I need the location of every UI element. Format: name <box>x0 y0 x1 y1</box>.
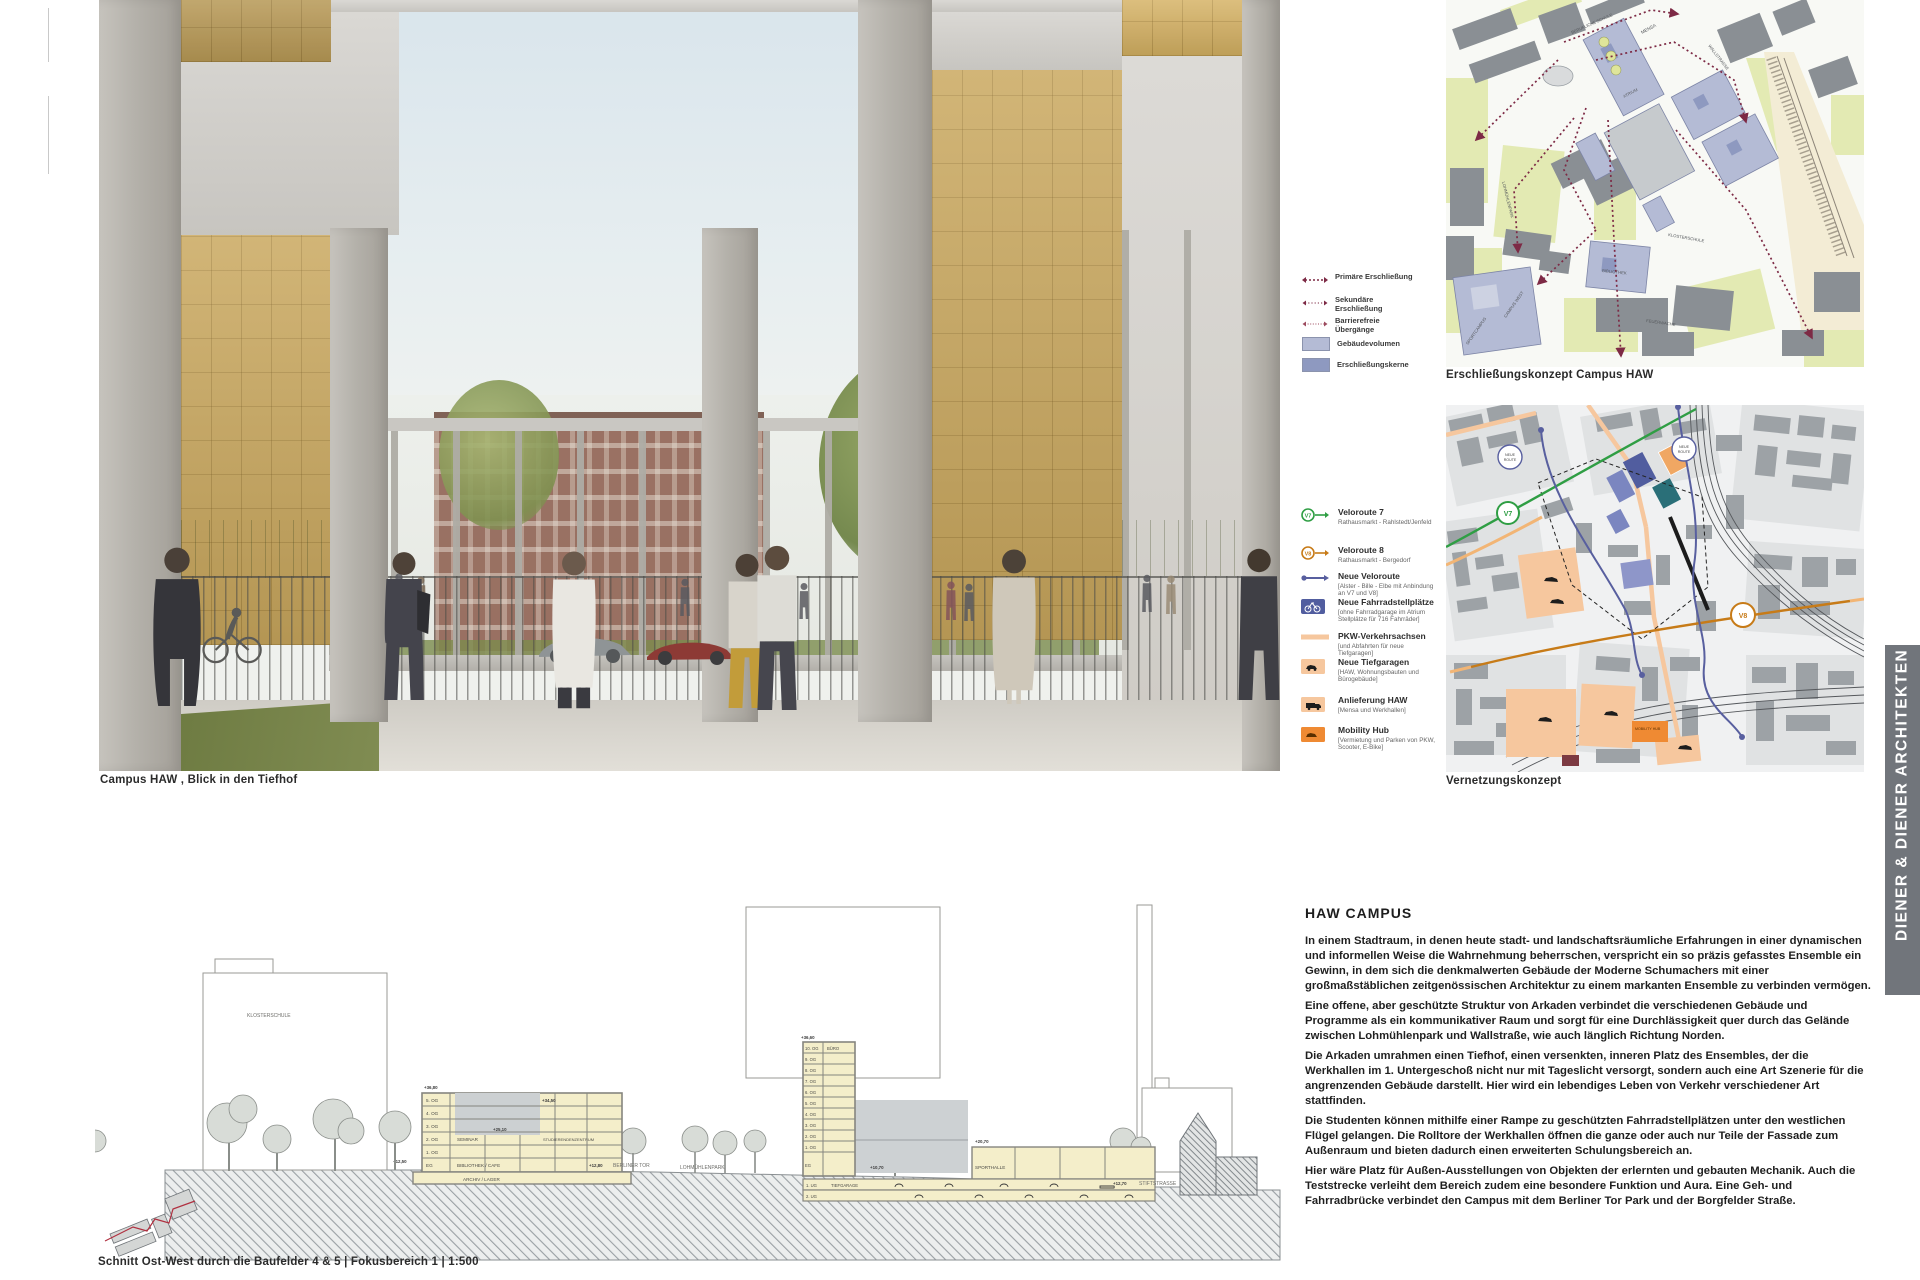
svg-text:V7: V7 <box>1305 514 1312 520</box>
mobility-hub-area <box>1632 721 1668 742</box>
gabled-annex <box>1216 1157 1257 1195</box>
crop-mark <box>48 96 49 174</box>
presentation-board: Campus HAW , Blick in den Tiefhof <box>0 0 1920 1280</box>
legend1-item: Primäre Erschließung <box>1302 272 1448 282</box>
svg-text:+25,10: +25,10 <box>493 1127 507 1132</box>
svg-text:3. OG: 3. OG <box>426 1124 439 1129</box>
garage-level2 <box>803 1190 1155 1201</box>
svg-text:SEMINAR: SEMINAR <box>457 1137 479 1142</box>
svg-text:3. OG: 3. OG <box>805 1123 816 1128</box>
sporthalle <box>972 1147 1155 1179</box>
veloroute8-icon: V8 <box>1300 546 1330 560</box>
svg-text:8. OG: 8. OG <box>805 1068 816 1073</box>
svg-text:NEUE: NEUE <box>1505 453 1516 457</box>
svg-text:EG: EG <box>805 1163 811 1168</box>
crop-mark <box>48 8 49 62</box>
article-title: HAW CAMPUS <box>1305 905 1871 921</box>
svg-text:EG: EG <box>426 1163 433 1168</box>
svg-text:5. OG: 5. OG <box>805 1101 816 1106</box>
svg-text:BIBLIOTHEK / CAFE: BIBLIOTHEK / CAFE <box>457 1163 500 1168</box>
svg-text:V8: V8 <box>1305 552 1312 558</box>
svg-text:NEUE: NEUE <box>1679 445 1690 449</box>
svg-text:+36,80: +36,80 <box>424 1085 438 1090</box>
map2-caption: Vernetzungskonzept <box>1446 775 1561 787</box>
stiftstrasse-label: STIFTSTRASSE <box>1139 1181 1177 1187</box>
svg-text:+20,70: +20,70 <box>975 1139 989 1144</box>
courtyard-rendering <box>99 0 1280 771</box>
svg-text:2. OG: 2. OG <box>805 1134 816 1139</box>
circulation-core-swatch <box>1302 358 1330 372</box>
bike-parking-icon <box>1300 598 1330 616</box>
svg-text:V7: V7 <box>1504 511 1513 518</box>
svg-text:6. OG: 6. OG <box>805 1090 816 1095</box>
svg-text:5. OG: 5. OG <box>426 1098 439 1103</box>
map-erschliessungskonzept: BERUFLICHE SCHULE MENSA WALLSTRASSE ATRI… <box>1446 0 1864 367</box>
person-lab-coat <box>552 551 595 706</box>
svg-text:1. OG: 1. OG <box>426 1150 439 1155</box>
race-car <box>647 643 735 665</box>
legend2-item: Neue Tiefgaragen[HAW, Wohnungsbauten und… <box>1300 658 1450 683</box>
map-vernetzungskonzept: MOBILITY HUB <box>1446 405 1864 772</box>
legend2-item: Neue Veloroute[Alster - Bille - Elbe mit… <box>1300 572 1450 597</box>
svg-text:V8: V8 <box>1739 613 1748 620</box>
svg-text:ROUTE: ROUTE <box>1678 450 1691 454</box>
building-a: 5. OG 4. OG 3. OG 2. OG 1. OG EG SEMINAR… <box>413 1085 631 1184</box>
section-drawing: KLOSTERSCHULE +12,50 <box>95 895 1285 1270</box>
mobility-hub-icon <box>1300 726 1330 744</box>
svg-text:+12,80: +12,80 <box>589 1163 603 1168</box>
svg-text:+34,50: +34,50 <box>542 1098 556 1103</box>
architect-name: DIENER & DIENER ARCHITEKTEN <box>1885 645 1920 945</box>
svg-text:BÜRO: BÜRO <box>827 1046 840 1051</box>
person-cyclist <box>204 608 261 662</box>
street-elev: +12,70 <box>1113 1181 1127 1186</box>
section-caption: Schnitt Ost-West durch die Baufelder 4 &… <box>98 1256 479 1268</box>
building-volume-swatch <box>1302 337 1330 351</box>
delivery-icon <box>1300 696 1330 714</box>
building-b: 10. OG 9. OG 8. OG 7. OG 6. OG 5. OG 4. … <box>801 1035 1155 1201</box>
svg-text:ARCHIV / LAGER: ARCHIV / LAGER <box>463 1177 500 1182</box>
person-man-shirt <box>757 546 796 710</box>
barrier-free-icon <box>1302 316 1328 326</box>
legend2-item: V7 Veloroute 7Rathausmarkt - Rahlstedt/J… <box>1300 508 1450 526</box>
primary-route-icon <box>1302 272 1328 282</box>
legend1-item: Erschließungskerne <box>1302 358 1448 372</box>
map1-caption: Erschließungskonzept Campus HAW <box>1446 369 1653 381</box>
lohmuehlenpark-label: LOHMÜHLENPARK <box>680 1164 725 1171</box>
legend2-item: Mobility Hub[Vermietung und Parken von P… <box>1300 726 1450 751</box>
neue-veloroute-icon <box>1300 572 1330 584</box>
legend1-item: Barrierefreie Übergänge <box>1302 316 1448 334</box>
svg-text:4. OG: 4. OG <box>426 1111 439 1116</box>
svg-text:ROUTE: ROUTE <box>1504 458 1517 462</box>
svg-text:TIEFGARAGE: TIEFGARAGE <box>831 1183 858 1188</box>
article-paragraph: Die Arkaden umrahmen einen Tiefhof, eine… <box>1305 1049 1871 1109</box>
klosterschule-label: KLOSTERSCHULE <box>247 1013 291 1019</box>
people-overlay <box>99 0 1280 771</box>
svg-text:SPORTHALLE: SPORTHALLE <box>975 1165 1005 1170</box>
maroon-building <box>1562 755 1579 766</box>
veloroute7-icon: V7 <box>1300 508 1330 522</box>
oval-plaza <box>1543 66 1573 86</box>
tiefgarage-icon <box>1300 658 1330 676</box>
svg-text:1. OG: 1. OG <box>805 1145 816 1150</box>
person-dark-coat <box>153 548 200 706</box>
article: HAW CAMPUS In einem Stadtraum, in denen … <box>1305 905 1871 1214</box>
mobility-hub-label: MOBILITY HUB <box>1635 727 1661 731</box>
person-dark-right <box>1239 549 1280 700</box>
svg-text:2. UG: 2. UG <box>806 1194 817 1199</box>
legend2-item: Anlieferung HAW[Mensa und Werkhallen] <box>1300 696 1450 714</box>
svg-text:1. UG: 1. UG <box>806 1183 817 1188</box>
svg-text:7. OG: 7. OG <box>805 1079 816 1084</box>
svg-text:2. OG: 2. OG <box>426 1137 439 1142</box>
legend2-item: V8 Veloroute 8Rathausmarkt - Bergedorf <box>1300 546 1450 564</box>
legend1-item: Sekundäre Erschließung <box>1302 295 1448 313</box>
courtyard-backdrop <box>855 1100 968 1173</box>
berliner-tor-label: BERLINER TOR <box>613 1163 650 1169</box>
svg-text:4. OG: 4. OG <box>805 1112 816 1117</box>
svg-text:STUDIERENDENZENTRUM: STUDIERENDENZENTRUM <box>543 1137 594 1142</box>
svg-text:9. OG: 9. OG <box>805 1057 816 1062</box>
svg-text:+36,60: +36,60 <box>801 1035 815 1040</box>
legend2-item: Neue Fahrradstellplätze[ohne Fahrradgara… <box>1300 598 1450 623</box>
legend2-item: PKW-Verkehrsachsen[und Abfahrten für neu… <box>1300 632 1450 657</box>
article-paragraph: Die Studenten können mithilfe einer Ramp… <box>1305 1114 1871 1159</box>
pkw-axis-icon <box>1300 632 1330 642</box>
svg-text:10. OG: 10. OG <box>805 1046 819 1051</box>
person-woman-bag <box>384 552 430 700</box>
person-beige-coat <box>992 549 1035 704</box>
bibliothek-building <box>1586 241 1650 293</box>
article-paragraph: In einem Stadtraum, in denen heute stadt… <box>1305 934 1871 994</box>
svg-text:+10,70: +10,70 <box>870 1165 884 1170</box>
legend1-item: Gebäudevolumen <box>1302 337 1448 351</box>
rendering-caption: Campus HAW , Blick in den Tiefhof <box>100 774 297 786</box>
article-paragraph: Eine offene, aber geschützte Struktur vo… <box>1305 999 1871 1044</box>
secondary-route-icon <box>1302 295 1328 305</box>
architect-bar: DIENER & DIENER ARCHITEKTEN <box>1885 645 1920 995</box>
article-paragraph: Hier wäre Platz für Außen-Ausstellungen … <box>1305 1164 1871 1209</box>
